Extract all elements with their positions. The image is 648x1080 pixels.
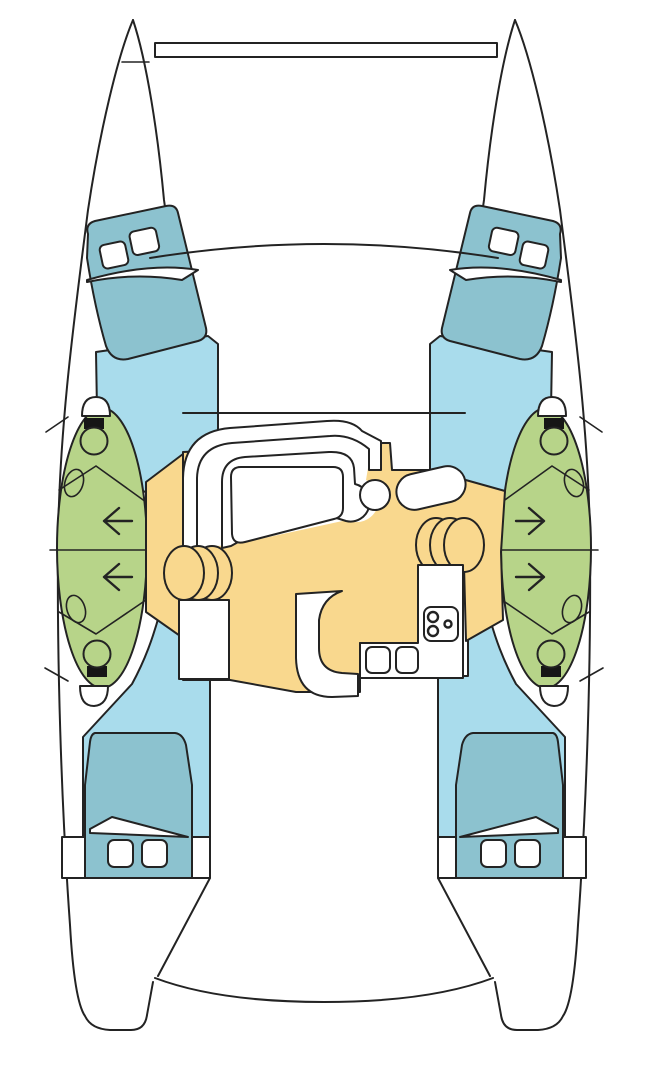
stove: [424, 607, 458, 641]
galley-sink: [366, 647, 390, 673]
salon-cabinet: [179, 600, 229, 679]
step: [444, 518, 484, 572]
companionway-steps-port: [164, 546, 232, 600]
galley-sink: [396, 647, 418, 673]
foredeck-curve: [150, 244, 498, 258]
bow-crossbeam: [155, 43, 497, 57]
catamaran-floor-plan: Top-view layout diagram of a sailing cat…: [0, 0, 648, 1080]
step: [164, 546, 204, 600]
floor-plan-canvas: [0, 0, 648, 1080]
salon-access-port: [146, 454, 183, 638]
companionway-steps-starboard: [416, 518, 484, 572]
settee-end-seat: [360, 480, 390, 510]
transom-curve: [155, 978, 493, 1002]
